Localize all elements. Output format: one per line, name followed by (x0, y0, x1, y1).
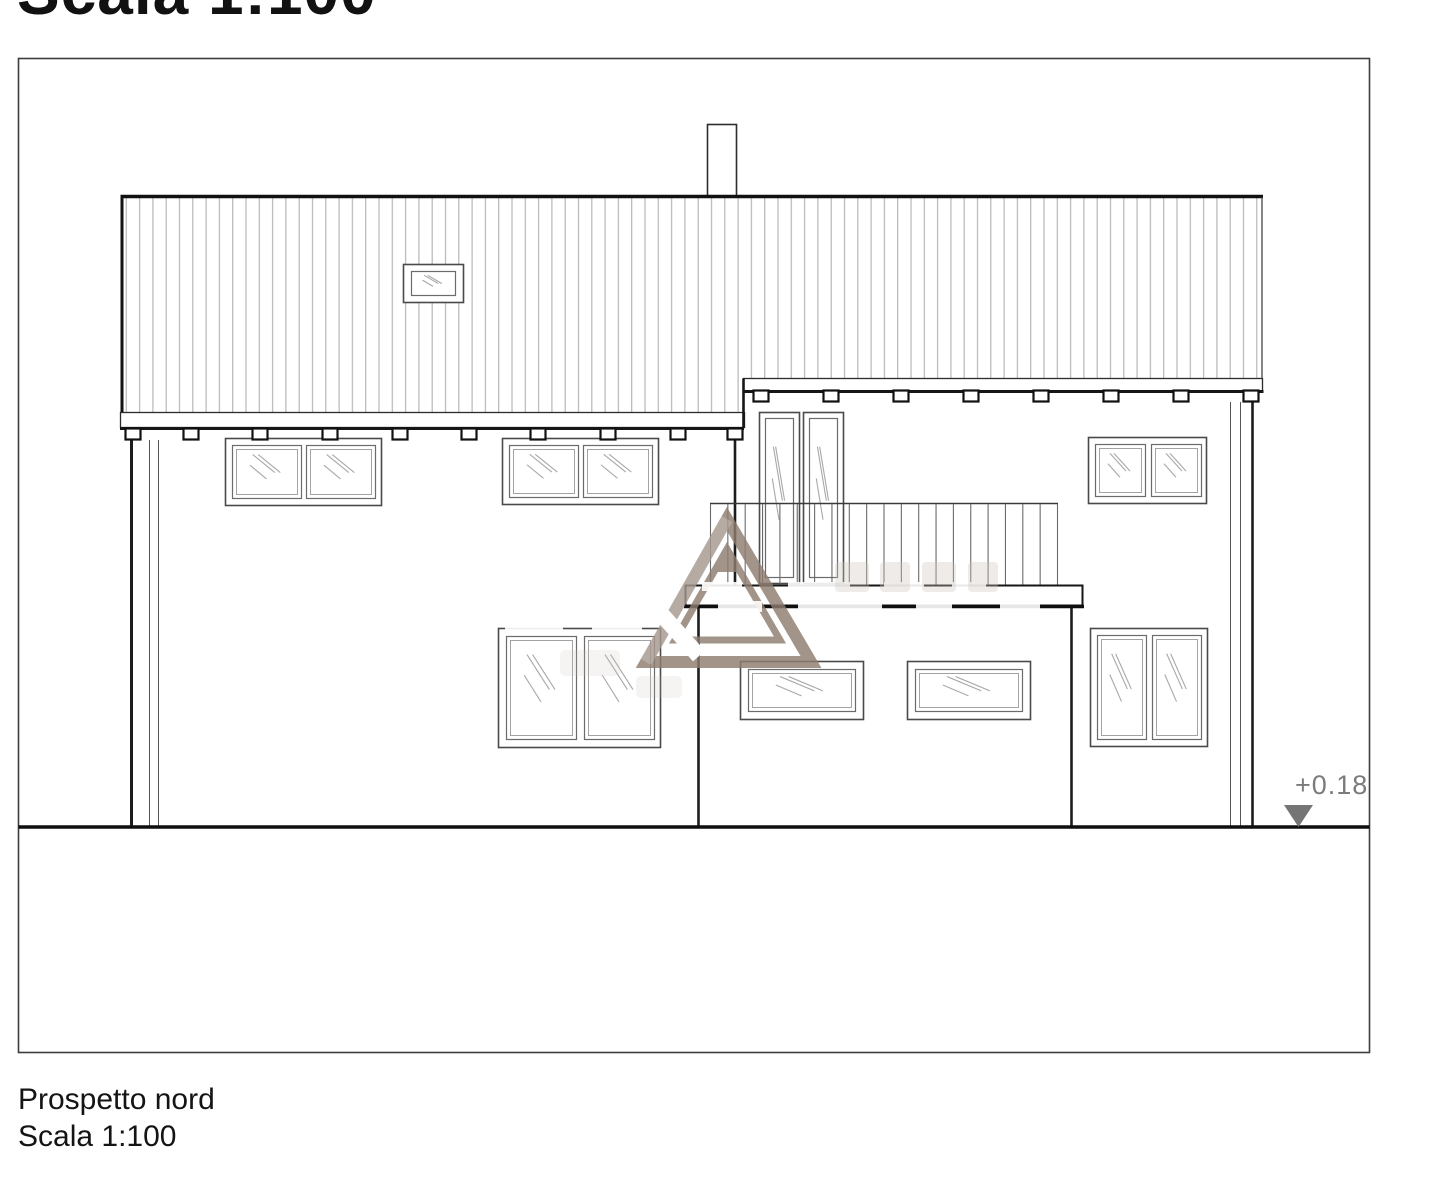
roof-hatch-right (743, 197, 1262, 378)
eave-bracket (184, 429, 199, 440)
roof (120, 125, 1264, 429)
roof-fascia-left (121, 413, 745, 428)
eave-bracket (754, 391, 769, 402)
eave-bracket (1034, 391, 1049, 402)
wing-window-left (741, 662, 864, 720)
eave-bracket (728, 429, 743, 440)
eave-bracket (671, 429, 686, 440)
eave-bracket (531, 429, 546, 440)
window-pair-lower-right (1091, 629, 1208, 747)
eave-bracket (894, 391, 909, 402)
chimney (708, 125, 737, 197)
eave-bracket (824, 391, 839, 402)
caption-block: Prospetto nord Scala 1:100 (18, 1081, 215, 1155)
north-elevation-drawing (0, 0, 1456, 1178)
eave-bracket (1244, 391, 1259, 402)
level-marker-triangle-icon (1284, 805, 1313, 827)
balcony-door-leaf-right (804, 413, 844, 584)
skylight-window (404, 265, 464, 303)
drawing-scale: Scala 1:100 (18, 1118, 215, 1155)
wing-window-right (908, 662, 1031, 720)
eave-bracket (393, 429, 408, 440)
eave-bracket (1174, 391, 1189, 402)
window-pair-upper-right (1089, 438, 1207, 504)
eave-bracket (126, 429, 141, 440)
eave-bracket (1104, 391, 1119, 402)
window-pair-upper-left-b (503, 439, 659, 505)
eave-bracket (253, 429, 268, 440)
eave-bracket (964, 391, 979, 402)
eave-bracket (601, 429, 616, 440)
eave-bracket (462, 429, 477, 440)
elevation-value-label: +0.18 (1295, 770, 1368, 801)
page: Scala 1:100 (0, 0, 1456, 1178)
eave-bracket (323, 429, 338, 440)
window-pair-upper-left-a (226, 439, 382, 506)
roof-hatch-left (122, 197, 742, 412)
drawing-title: Prospetto nord (18, 1081, 215, 1118)
